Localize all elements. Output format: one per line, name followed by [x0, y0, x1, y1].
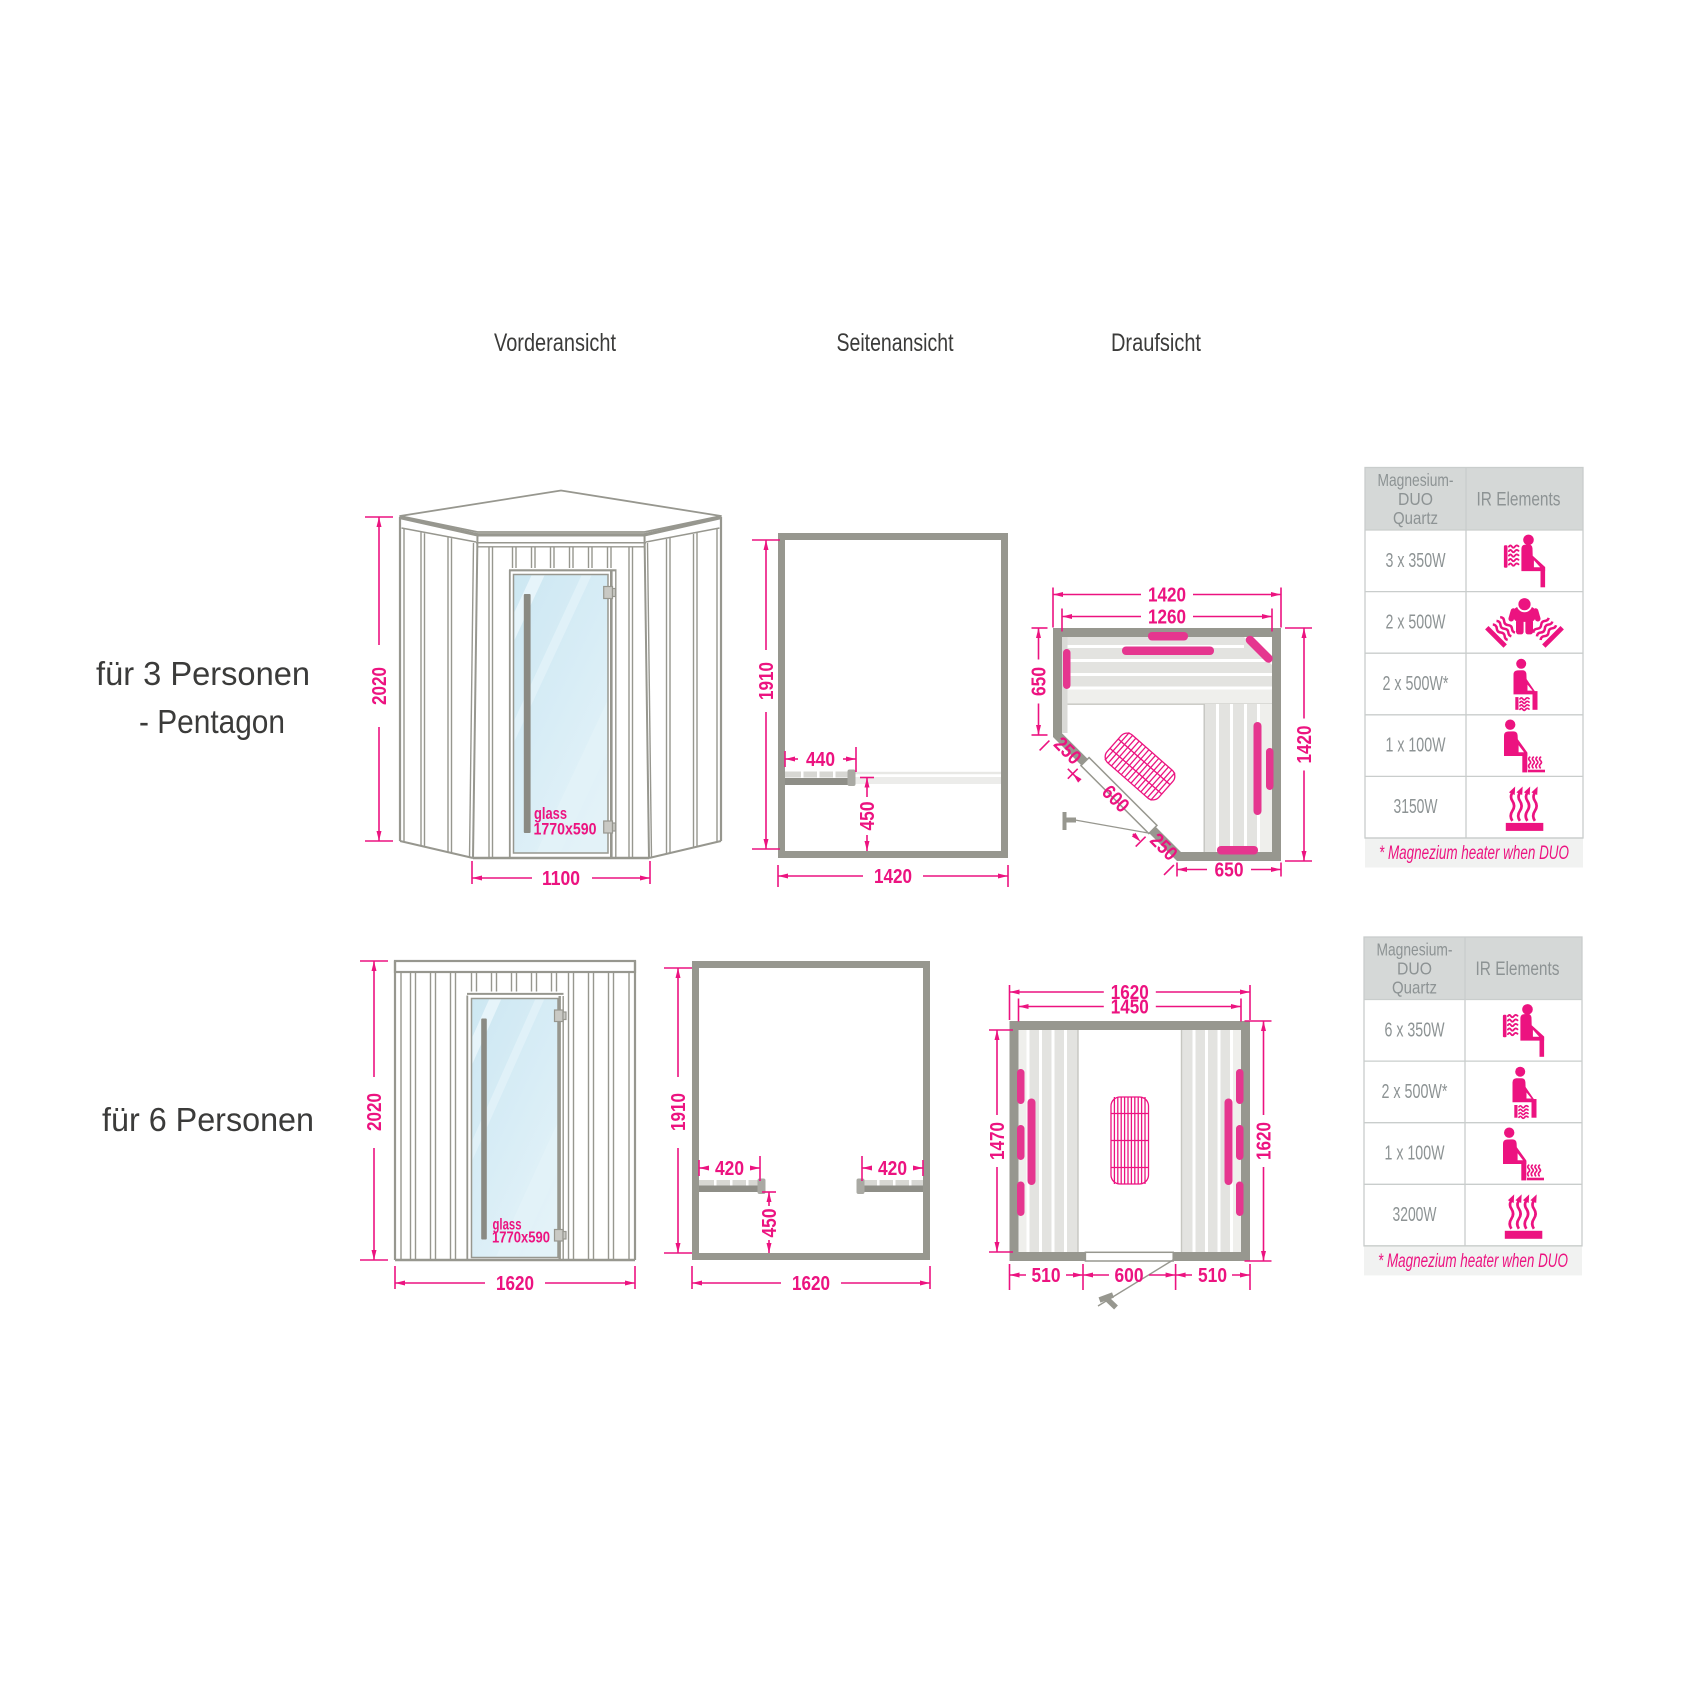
- svg-text:Draufsicht: Draufsicht: [1111, 329, 1201, 357]
- svg-text:* Magnezium heater when DUO: * Magnezium heater when DUO: [1379, 843, 1569, 864]
- svg-text:IR Elements: IR Elements: [1477, 489, 1561, 511]
- svg-text:650: 650: [1215, 860, 1244, 882]
- svg-text:1470: 1470: [987, 1122, 1009, 1160]
- svg-text:1910: 1910: [756, 662, 778, 700]
- svg-text:1620: 1620: [496, 1273, 534, 1295]
- svg-text:- Pentagon: - Pentagon: [139, 703, 285, 740]
- svg-text:Quartz: Quartz: [1392, 978, 1437, 998]
- svg-text:Vorderansicht: Vorderansicht: [494, 329, 616, 357]
- svg-text:650: 650: [1029, 667, 1051, 696]
- svg-text:1770x590: 1770x590: [492, 1230, 550, 1247]
- svg-text:DUO: DUO: [1398, 489, 1433, 509]
- svg-text:3 x 350W: 3 x 350W: [1386, 550, 1446, 572]
- svg-text:1770x590: 1770x590: [534, 820, 597, 839]
- svg-text:450: 450: [759, 1209, 781, 1238]
- svg-text:2 x 500W*: 2 x 500W*: [1382, 1081, 1448, 1103]
- svg-text:3150W: 3150W: [1394, 796, 1438, 818]
- svg-text:450: 450: [857, 802, 879, 831]
- svg-text:1260: 1260: [1148, 607, 1186, 629]
- svg-text:1100: 1100: [542, 868, 580, 890]
- svg-text:250: 250: [1145, 829, 1181, 865]
- svg-text:250: 250: [1049, 733, 1085, 769]
- svg-text:420: 420: [715, 1158, 744, 1180]
- svg-text:1 x 100W: 1 x 100W: [1385, 1143, 1445, 1165]
- svg-text:1910: 1910: [668, 1093, 690, 1131]
- svg-text:420: 420: [878, 1158, 907, 1180]
- svg-text:* Magnezium heater when DUO: * Magnezium heater when DUO: [1378, 1251, 1568, 1272]
- svg-text:1420: 1420: [1294, 726, 1316, 764]
- svg-text:1620: 1620: [792, 1273, 830, 1295]
- svg-text:Magnesium-: Magnesium-: [1378, 470, 1454, 490]
- svg-text:1450: 1450: [1111, 997, 1149, 1019]
- svg-text:für 3 Personen: für 3 Personen: [96, 655, 310, 692]
- svg-text:2020: 2020: [364, 1093, 386, 1131]
- svg-text:600: 600: [1115, 1265, 1144, 1287]
- svg-text:IR Elements: IR Elements: [1476, 958, 1560, 980]
- svg-text:1620: 1620: [1254, 1122, 1276, 1160]
- svg-text:1 x 100W: 1 x 100W: [1386, 735, 1446, 757]
- svg-text:Quartz: Quartz: [1393, 508, 1438, 528]
- svg-text:3200W: 3200W: [1393, 1204, 1437, 1226]
- svg-text:510: 510: [1032, 1265, 1061, 1287]
- svg-text:Seitenansicht: Seitenansicht: [837, 329, 954, 357]
- svg-text:2 x 500W: 2 x 500W: [1386, 611, 1446, 633]
- svg-text:1420: 1420: [1148, 585, 1186, 607]
- svg-text:510: 510: [1198, 1265, 1227, 1287]
- svg-text:440: 440: [806, 749, 835, 771]
- svg-text:2020: 2020: [369, 667, 391, 705]
- svg-text:1420: 1420: [874, 866, 912, 888]
- svg-text:für 6 Personen: für 6 Personen: [102, 1101, 314, 1138]
- svg-text:2 x 500W*: 2 x 500W*: [1383, 673, 1449, 695]
- svg-text:6 x 350W: 6 x 350W: [1385, 1019, 1445, 1041]
- svg-text:Magnesium-: Magnesium-: [1377, 940, 1453, 960]
- svg-text:DUO: DUO: [1397, 959, 1432, 979]
